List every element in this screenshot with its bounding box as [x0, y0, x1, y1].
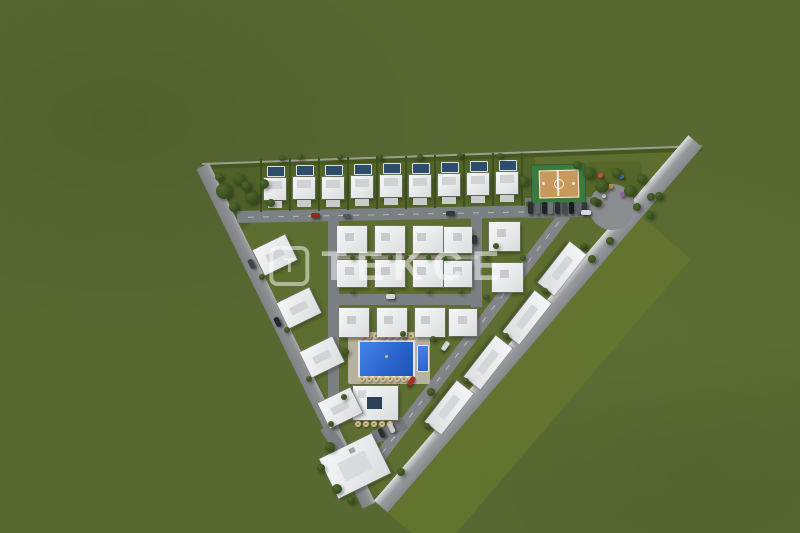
parked-car [542, 202, 547, 214]
apartment-roof [458, 316, 467, 324]
tree [646, 211, 654, 219]
car [386, 294, 395, 299]
pool-umbrella [408, 333, 414, 339]
car [311, 213, 320, 218]
car [446, 211, 455, 216]
tree [317, 464, 325, 472]
villa-terrace [355, 199, 369, 206]
villa-hedge [405, 156, 407, 209]
villa-hedge [434, 155, 436, 208]
apartment-roof [345, 267, 354, 275]
villa-roof [471, 176, 485, 184]
pool-umbrella [394, 376, 400, 382]
tree [583, 167, 595, 179]
tree [426, 255, 431, 260]
tree [388, 289, 393, 294]
tree [590, 197, 598, 205]
villa-pool [354, 164, 372, 175]
pool-umbrella [401, 376, 407, 382]
apartment-roof [421, 316, 430, 324]
terrace-umbrella [363, 421, 369, 427]
tree [612, 168, 622, 178]
tree [606, 237, 614, 245]
tree [426, 289, 431, 294]
tree [341, 348, 349, 356]
pool-umbrella [387, 376, 393, 382]
villa-terrace [297, 200, 311, 207]
tree [581, 243, 587, 249]
court-center-circle [554, 179, 564, 189]
tree [337, 154, 343, 160]
tree [417, 154, 423, 160]
villa-terrace [326, 200, 340, 207]
tree [259, 274, 265, 280]
tree [400, 331, 406, 337]
villa-terrace [442, 197, 456, 204]
tree [297, 154, 303, 160]
tree [404, 255, 409, 260]
tree [216, 183, 232, 199]
parked-car [555, 202, 560, 214]
car [472, 235, 477, 244]
tree [229, 202, 239, 212]
apartment-block [375, 226, 405, 253]
apartment-roof [345, 233, 354, 241]
parked-car [569, 202, 574, 214]
tree [259, 179, 269, 189]
villa-roof [384, 178, 398, 186]
villa-hedge [492, 153, 494, 206]
tree [483, 294, 489, 300]
tree [430, 336, 436, 342]
tree [633, 203, 641, 211]
villa-roof [355, 179, 369, 187]
villa-hedge [289, 158, 291, 211]
apartment-roof [381, 267, 390, 275]
pool-umbrella [380, 376, 386, 382]
tree [637, 174, 647, 184]
tree [595, 179, 609, 193]
tree [493, 243, 499, 249]
tree [377, 154, 383, 160]
villa-pool [267, 166, 285, 177]
tree [442, 255, 447, 260]
tree [350, 255, 355, 260]
car [581, 210, 591, 215]
tree [328, 421, 334, 427]
tree [458, 289, 463, 294]
tree [350, 289, 355, 294]
villa-pool [441, 162, 459, 173]
villa-pool [412, 163, 430, 174]
apartment-roof [417, 233, 426, 241]
apartment-roof [384, 316, 393, 324]
villa-hedge [463, 154, 465, 207]
pool-umbrella [366, 376, 372, 382]
tree [624, 185, 636, 197]
villa-terrace [500, 195, 514, 202]
tree [215, 173, 223, 181]
tree [347, 496, 355, 504]
villa-roof [442, 177, 456, 185]
parked-car [535, 202, 540, 214]
swimmer [385, 355, 388, 358]
villa-roof [268, 181, 282, 189]
tree [366, 255, 371, 260]
villa-pool [499, 160, 517, 171]
tree [325, 442, 335, 452]
tree [427, 388, 435, 396]
pool-umbrella [373, 376, 379, 382]
tree [332, 484, 342, 494]
tree [463, 378, 469, 384]
apartment-roof [453, 233, 462, 241]
villa-roof [500, 175, 514, 183]
terrace-umbrella [355, 421, 361, 427]
villa-hedge [347, 157, 349, 210]
tree [655, 192, 663, 200]
apartment-roof [500, 270, 509, 278]
tree [542, 288, 548, 294]
tree [245, 190, 259, 204]
tree [241, 181, 251, 191]
tree [457, 153, 463, 159]
playground-equipment [602, 194, 606, 198]
villa-roof [413, 178, 427, 186]
pool-umbrella [359, 376, 365, 382]
site-plan-render: T TEKCE [0, 0, 800, 533]
tree [588, 255, 596, 263]
villa-pool [325, 165, 343, 176]
tree [497, 153, 503, 159]
tree [388, 255, 393, 260]
villa-pool [383, 163, 401, 174]
tree [279, 155, 285, 161]
tree [503, 333, 509, 339]
social-facility-roof [358, 390, 366, 398]
villa-roof [297, 180, 311, 188]
court-hoop [572, 182, 575, 185]
tree [306, 376, 312, 382]
social-facility-glass-court [367, 397, 382, 409]
terrace-umbrella [371, 421, 377, 427]
tree [341, 394, 347, 400]
swimming-pool [358, 340, 415, 378]
kids-pool [417, 345, 429, 372]
apartment-block [375, 260, 405, 287]
parked-car [528, 202, 533, 214]
apartment-roof [347, 316, 356, 324]
parked-car [576, 202, 581, 214]
tree [424, 423, 430, 429]
court-hoop [542, 182, 545, 185]
tree [284, 327, 290, 333]
playground-equipment [598, 173, 603, 178]
villa-terrace [471, 196, 485, 203]
apartment-roof [497, 229, 506, 237]
tree [519, 176, 529, 186]
tree [573, 161, 581, 169]
apartment-block [415, 308, 445, 337]
tree [267, 199, 275, 207]
parked-car [562, 202, 567, 214]
street-c [331, 294, 482, 305]
villa-pool [296, 165, 314, 176]
villa-hedge [376, 156, 378, 209]
tree [647, 193, 655, 201]
apartment-roof [381, 233, 390, 241]
villa-terrace [413, 198, 427, 205]
villa-hedge [318, 158, 320, 211]
villa-roof [326, 180, 340, 188]
tree [483, 254, 489, 260]
apartment-roof [453, 267, 462, 275]
tree [397, 468, 405, 476]
villa-terrace [384, 198, 398, 205]
parked-car [548, 202, 553, 214]
terrace-umbrella [379, 421, 385, 427]
villa-pool [470, 161, 488, 172]
tree [520, 255, 526, 261]
car [343, 214, 351, 218]
apartment-roof [417, 267, 426, 275]
